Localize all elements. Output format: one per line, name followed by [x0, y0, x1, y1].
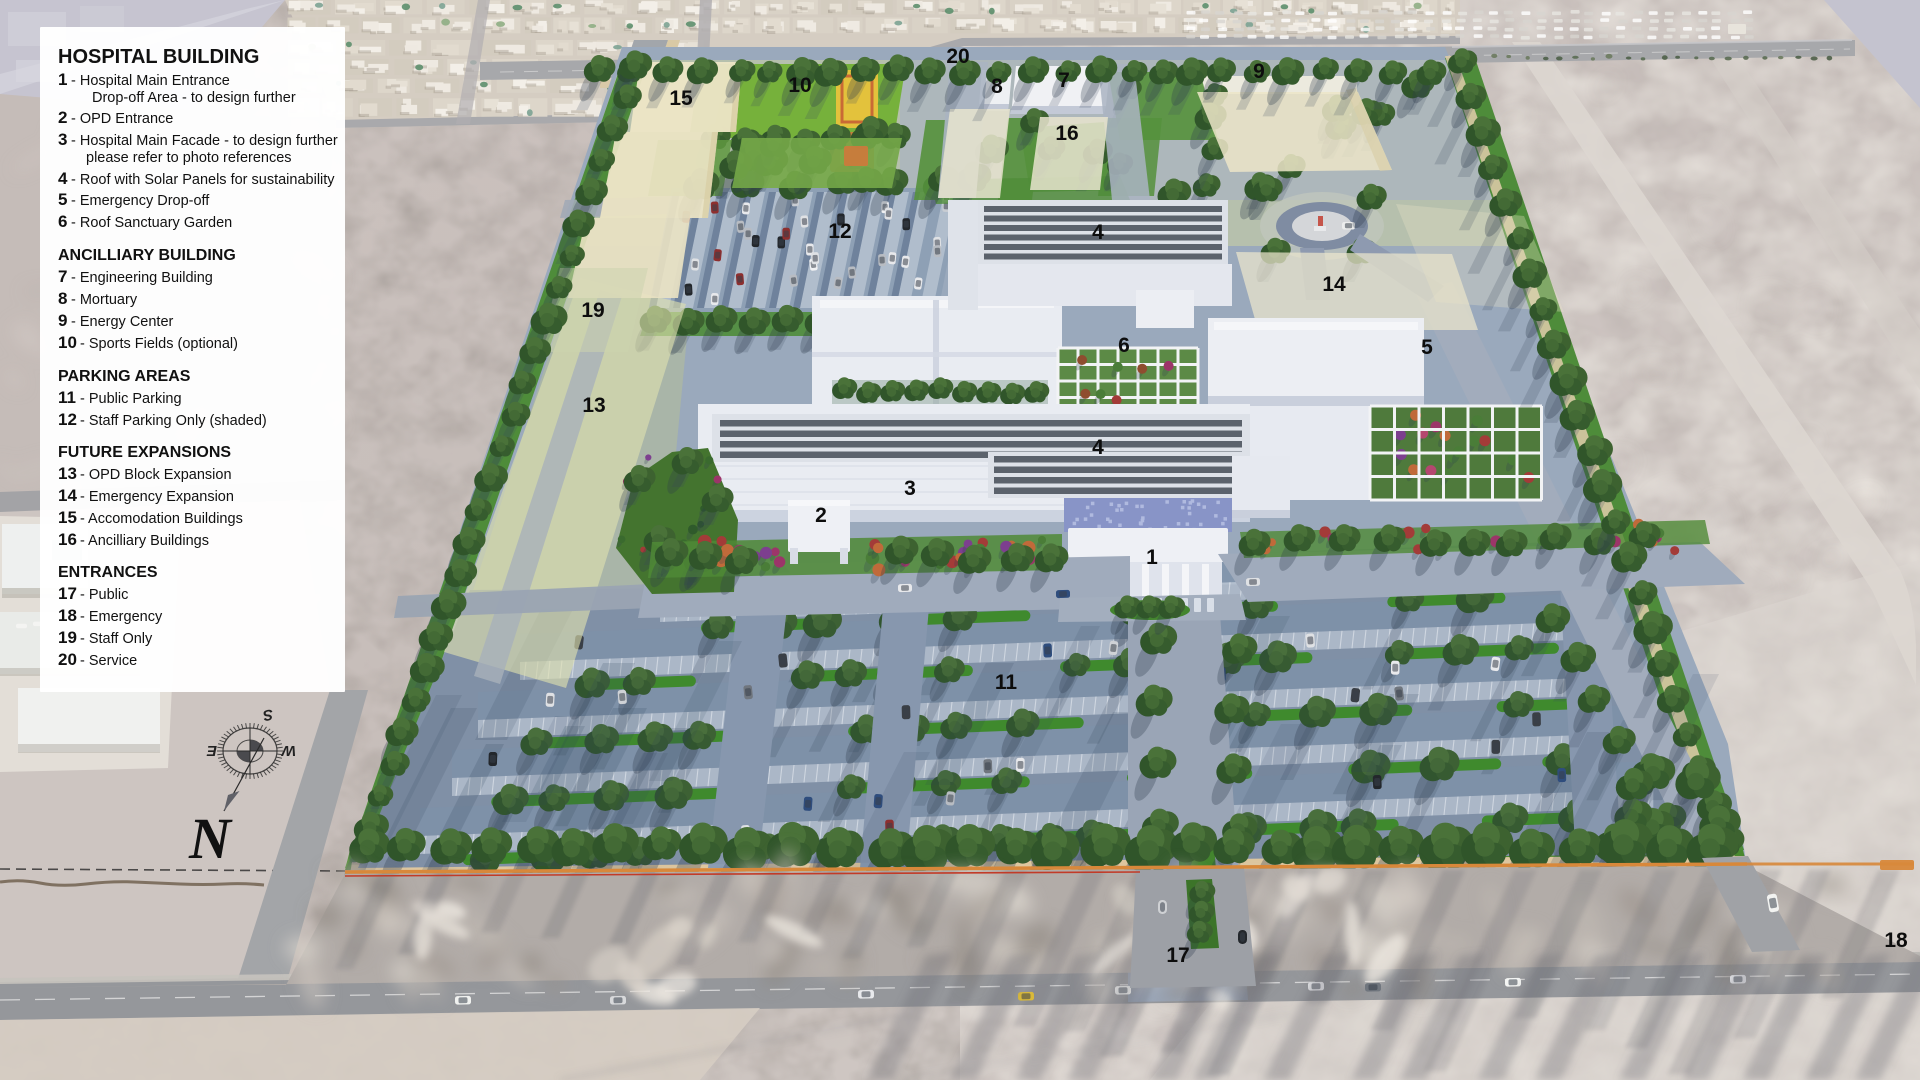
svg-text:17: 17	[58, 584, 77, 603]
svg-text:- Public Parking: - Public Parking	[80, 391, 182, 407]
svg-text:3: 3	[58, 130, 67, 149]
svg-text:11: 11	[58, 388, 76, 407]
svg-text:- Staff Parking Only (shaded): - Staff Parking Only (shaded)	[80, 413, 267, 429]
svg-text:16: 16	[58, 530, 77, 549]
svg-text:E: E	[206, 742, 217, 759]
svg-text:- Emergency Expansion: - Emergency Expansion	[80, 489, 234, 505]
svg-text:19: 19	[58, 628, 77, 647]
svg-text:10: 10	[58, 333, 77, 352]
svg-text:- Ancilliary Buildings: - Ancilliary Buildings	[80, 533, 209, 549]
svg-text:17: 17	[1166, 944, 1189, 967]
svg-text:ANCILLIARY BUILDING: ANCILLIARY BUILDING	[58, 247, 236, 264]
svg-text:20: 20	[58, 650, 77, 669]
svg-text:15: 15	[669, 87, 693, 110]
svg-text:PARKING AREAS: PARKING AREAS	[58, 368, 191, 385]
svg-text:ENTRANCES: ENTRANCES	[58, 564, 158, 581]
svg-text:18: 18	[58, 606, 77, 625]
svg-text:13: 13	[58, 464, 77, 483]
svg-text:- OPD Block Expansion: - OPD Block Expansion	[80, 467, 232, 483]
svg-text:14: 14	[58, 486, 77, 505]
svg-text:- Emergency Drop-off: - Emergency Drop-off	[71, 193, 210, 209]
svg-text:- Roof Sanctuary Garden: - Roof Sanctuary Garden	[71, 215, 232, 231]
svg-text:4: 4	[58, 169, 68, 188]
svg-text:please refer to photo referenc: please refer to photo references	[86, 150, 292, 166]
svg-text:- Public: - Public	[80, 587, 128, 603]
svg-text:1: 1	[58, 70, 67, 89]
svg-text:8: 8	[991, 75, 1003, 98]
svg-text:N: N	[188, 806, 233, 871]
svg-text:- OPD Entrance: - OPD Entrance	[71, 111, 173, 127]
svg-text:9: 9	[58, 311, 67, 330]
svg-text:5: 5	[1421, 336, 1433, 359]
svg-text:20: 20	[946, 45, 969, 68]
svg-text:10: 10	[788, 74, 811, 97]
svg-text:12: 12	[828, 220, 851, 243]
svg-text:- Staff Only: - Staff Only	[80, 631, 153, 647]
svg-text:13: 13	[582, 394, 605, 417]
svg-text:14: 14	[1322, 273, 1346, 296]
svg-text:9: 9	[1253, 60, 1265, 83]
svg-text:11: 11	[995, 671, 1018, 694]
svg-text:HOSPITAL BUILDING: HOSPITAL BUILDING	[58, 46, 259, 68]
svg-text:2: 2	[815, 504, 827, 527]
svg-text:3: 3	[904, 477, 916, 500]
svg-text:15: 15	[58, 508, 77, 527]
svg-text:- Accomodation Buildings: - Accomodation Buildings	[80, 511, 243, 527]
svg-text:- Service: - Service	[80, 653, 137, 669]
svg-text:1: 1	[1146, 546, 1158, 569]
svg-text:- Energy Center: - Energy Center	[71, 314, 174, 330]
svg-text:2: 2	[58, 108, 67, 127]
svg-text:W: W	[280, 742, 296, 759]
svg-text:18: 18	[1884, 929, 1908, 952]
svg-text:6: 6	[1118, 334, 1130, 357]
svg-text:19: 19	[581, 299, 604, 322]
svg-text:12: 12	[58, 410, 77, 429]
svg-text:4: 4	[1092, 436, 1104, 459]
svg-text:- Engineering Building: - Engineering Building	[71, 270, 213, 286]
svg-text:- Sports Fields (optional): - Sports Fields (optional)	[80, 336, 238, 352]
svg-text:16: 16	[1055, 122, 1078, 145]
svg-text:4: 4	[1092, 221, 1104, 244]
svg-text:- Roof with Solar Panels for s: - Roof with Solar Panels for sustainabil…	[71, 172, 335, 188]
svg-text:- Hospital Main Facade - to de: - Hospital Main Facade - to design furth…	[71, 133, 338, 149]
svg-text:6: 6	[58, 212, 67, 231]
svg-text:Drop-off Area - to design furt: Drop-off Area - to design further	[92, 90, 296, 106]
svg-text:7: 7	[1058, 69, 1070, 92]
svg-text:- Hospital Main Entrance: - Hospital Main Entrance	[71, 73, 230, 89]
svg-text:8: 8	[58, 289, 67, 308]
svg-text:- Mortuary: - Mortuary	[71, 292, 138, 308]
svg-text:FUTURE EXPANSIONS: FUTURE EXPANSIONS	[58, 444, 231, 461]
svg-text:7: 7	[58, 267, 67, 286]
svg-text:- Emergency: - Emergency	[80, 609, 163, 625]
svg-text:5: 5	[58, 190, 67, 209]
